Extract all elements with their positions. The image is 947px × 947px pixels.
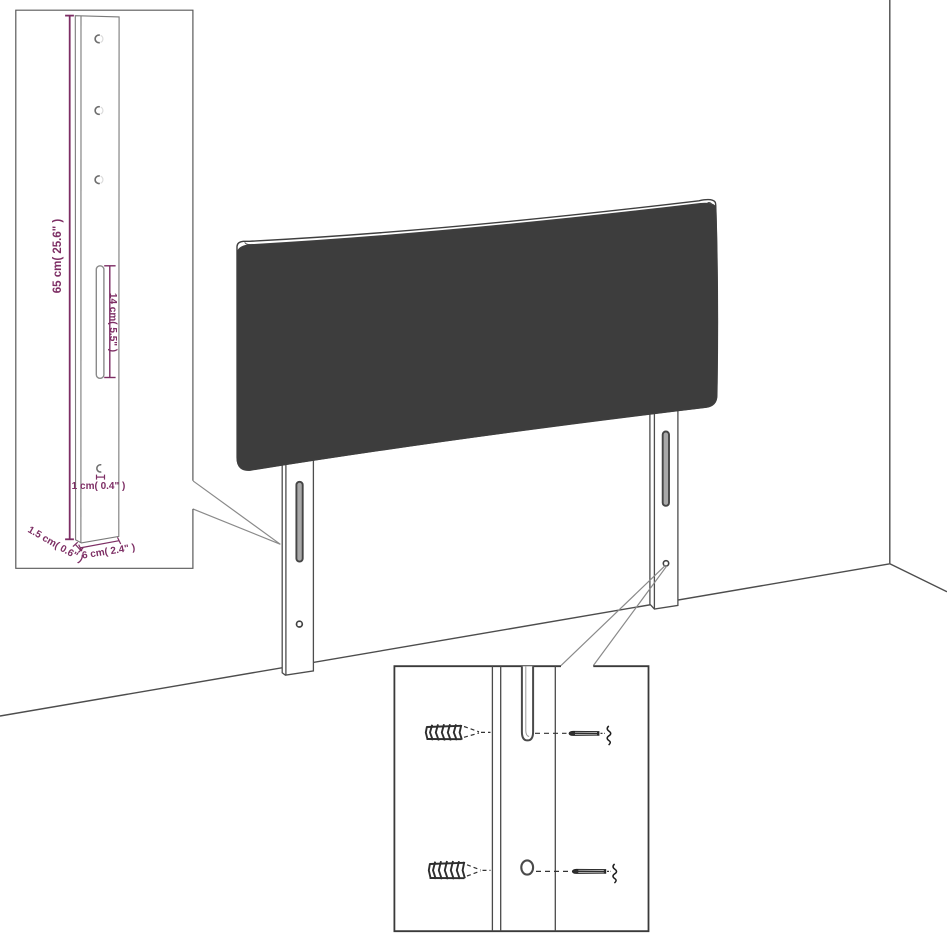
svg-text:65 cm( 25.6" ): 65 cm( 25.6" ) [52, 219, 64, 294]
svg-text:1 cm( 0.4" ): 1 cm( 0.4" ) [72, 481, 126, 492]
svg-text:14 cm( 5.5" ): 14 cm( 5.5" ) [107, 293, 118, 352]
